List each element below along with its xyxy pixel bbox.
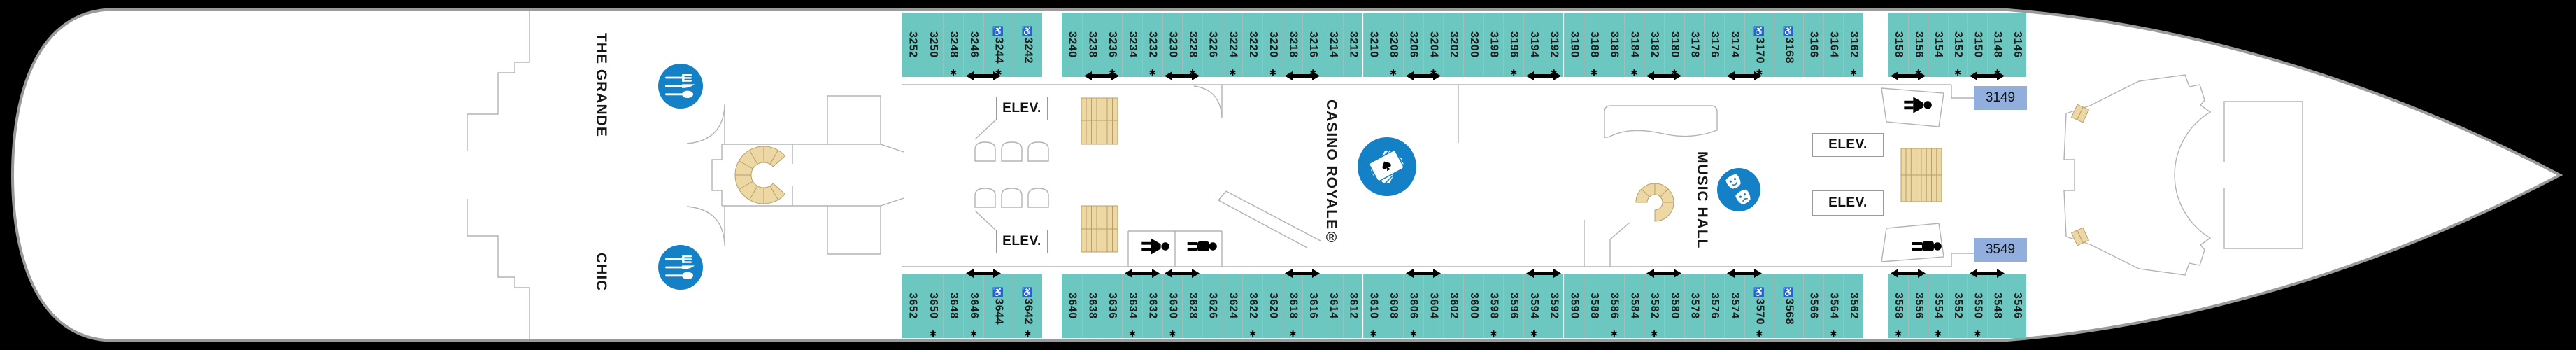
cabin-3149[interactable]: 3149 [1974, 86, 2027, 110]
deck-plan: 325232503248✱3246♿3244✱♿3242324032383236… [0, 0, 2576, 350]
venue-label-chic: CHIC [594, 253, 609, 291]
elevator-label: ELEV. [996, 97, 1048, 120]
connecting-staterooms-arrow-icon [1164, 267, 1200, 279]
connecting-staterooms-arrow-icon [1284, 267, 1321, 279]
venue-label-the-grande: THE GRANDE [594, 33, 609, 137]
elevator-label: ELEV. [1812, 133, 1884, 157]
venue-label-casino-royale: CASINO ROYALE® [1324, 99, 1339, 246]
cabin-3549[interactable]: 3549 [1974, 238, 2027, 262]
connecting-staterooms-arrow-icon [1969, 267, 2005, 279]
connecting-staterooms-arrow-icon [1405, 70, 1442, 82]
venue-label-music-hall: MUSIC HALL [1695, 151, 1709, 249]
connecting-staterooms-arrow-icon [1525, 267, 1562, 279]
connecting-staterooms-arrow-icon [1646, 267, 1682, 279]
connecting-staterooms-arrow-icon [1646, 70, 1682, 82]
connecting-staterooms-arrow-icon [965, 70, 1002, 82]
connecting-staterooms-arrow-icon [1890, 267, 1926, 279]
elevator-label: ELEV. [1812, 190, 1884, 216]
connecting-staterooms-arrow-icon [1164, 70, 1200, 82]
connecting-staterooms-arrow-icon [965, 267, 1002, 279]
connecting-staterooms-arrow-icon [1726, 70, 1763, 82]
connecting-staterooms-arrow-icon [1083, 70, 1120, 82]
connecting-staterooms-arrow-icon [1405, 267, 1442, 279]
connecting-staterooms-arrow-icon [1969, 70, 2005, 82]
labels-layer: THE GRANDE CHIC CASINO ROYALE® MUSIC HAL… [0, 0, 2576, 350]
connecting-staterooms-arrow-icon [1284, 70, 1321, 82]
connecting-staterooms-arrow-icon [1726, 267, 1763, 279]
connecting-staterooms-arrow-icon [1890, 70, 1926, 82]
elevator-label: ELEV. [996, 230, 1048, 253]
connecting-staterooms-arrow-icon [1525, 70, 1562, 82]
connecting-staterooms-arrow-icon [1124, 267, 1160, 279]
